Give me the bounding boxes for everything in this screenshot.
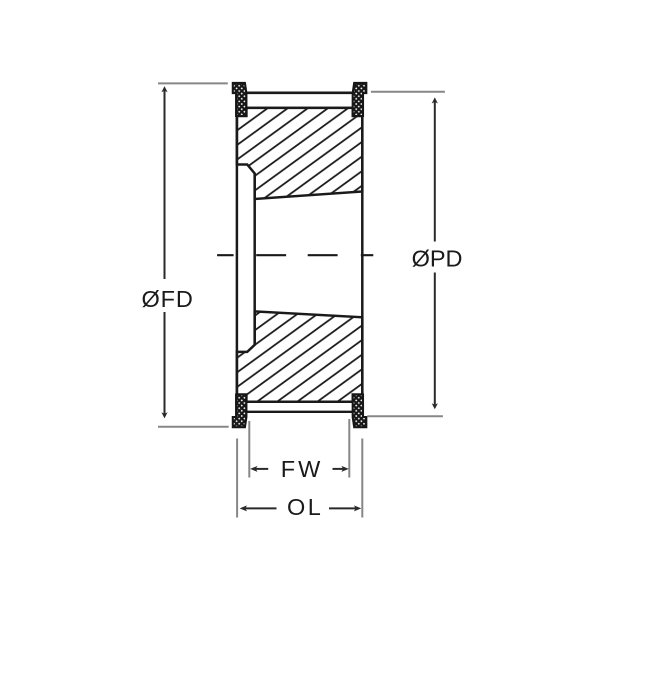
svg-text:FW: FW	[281, 456, 324, 482]
svg-text:ØFD: ØFD	[142, 286, 194, 312]
svg-text:ØPD: ØPD	[412, 246, 463, 272]
svg-text:OL: OL	[287, 494, 323, 520]
